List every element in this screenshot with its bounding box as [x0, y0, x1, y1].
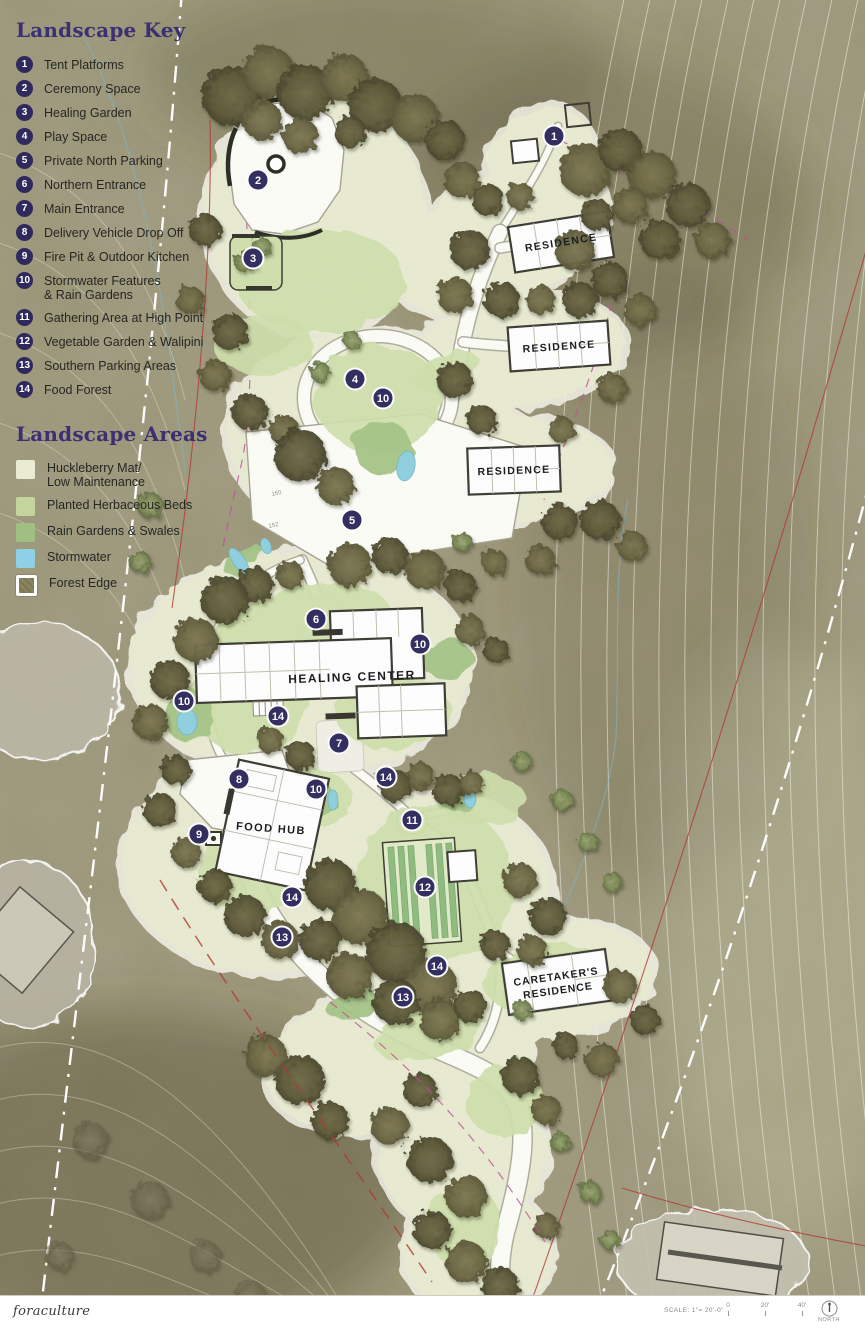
legend-key-item-2: 2Ceremony Space	[16, 79, 256, 97]
legend-key-item-9: 9Fire Pit & Outdoor Kitchen	[16, 247, 256, 265]
area-color-swatch	[16, 460, 35, 479]
north-indicator: NORTH	[816, 1300, 842, 1323]
key-number-badge: 13	[16, 357, 33, 374]
svg-text:8: 8	[236, 774, 242, 786]
tent-platform	[511, 139, 539, 164]
plan-marker-9: 9	[189, 824, 210, 845]
key-number-badge: 10	[16, 272, 33, 289]
plan-marker-13: 13	[393, 987, 414, 1008]
key-number-badge: 3	[16, 104, 33, 121]
plan-marker-11: 11	[402, 810, 423, 831]
area-label: Forest Edge	[49, 574, 117, 591]
legend-area-item: Rain Gardens & Swales	[16, 522, 256, 542]
legend-key-item-3: 3Healing Garden	[16, 103, 256, 121]
key-number-badge: 5	[16, 152, 33, 169]
scale-tick: 40'	[792, 1302, 812, 1316]
key-number-badge: 6	[16, 176, 33, 193]
legend-key-item-13: 13Southern Parking Areas	[16, 356, 256, 374]
legend-key-title: Landscape Key	[16, 18, 256, 42]
legend-key-item-4: 4Play Space	[16, 127, 256, 145]
legend-key-list: 1Tent Platforms2Ceremony Space3Healing G…	[16, 55, 256, 398]
area-color-swatch	[16, 549, 35, 568]
key-number-badge: 1	[16, 56, 33, 73]
key-number-badge: 14	[16, 381, 33, 398]
legend-panel: Landscape Key 1Tent Platforms2Ceremony S…	[16, 6, 256, 602]
legend-key-item-6: 6Northern Entrance	[16, 175, 256, 193]
svg-text:5: 5	[349, 515, 355, 527]
scale-bar: 020'40'	[718, 1302, 818, 1326]
key-item-label: Gathering Area at High Point	[44, 308, 203, 325]
key-number-badge: 7	[16, 200, 33, 217]
plan-marker-14: 14	[268, 706, 289, 727]
plan-marker-1: 1	[544, 126, 565, 147]
plan-marker-10: 10	[306, 779, 327, 800]
legend-key-item-1: 1Tent Platforms	[16, 55, 256, 73]
key-item-label: Vegetable Garden & Walipini	[44, 332, 203, 349]
scale-text: SCALE: 1"= 20'-0"	[664, 1307, 724, 1314]
plan-marker-14: 14	[376, 767, 397, 788]
svg-text:14: 14	[431, 961, 444, 973]
plan-marker-10: 10	[174, 691, 195, 712]
key-item-label: Tent Platforms	[44, 55, 124, 72]
area-color-swatch	[16, 575, 37, 596]
key-item-label: Ceremony Space	[44, 79, 141, 96]
plan-marker-4: 4	[345, 369, 366, 390]
key-item-label: Fire Pit & Outdoor Kitchen	[44, 247, 189, 264]
plan-marker-13: 13	[272, 927, 293, 948]
svg-text:10: 10	[178, 696, 190, 708]
legend-area-item: Huckleberry Mat/ Low Maintenance	[16, 459, 256, 490]
svg-text:4: 4	[352, 374, 359, 386]
svg-text:10: 10	[310, 784, 322, 796]
plan-marker-14: 14	[427, 956, 448, 977]
landscape-plan-sheet: RESIDENCE RESIDENCE RESIDENCE HEALING CE…	[0, 0, 865, 1329]
key-item-label: Northern Entrance	[44, 175, 146, 192]
sheet-footer: foraculture SCALE: 1"= 20'-0" 020'40' NO…	[0, 1295, 865, 1329]
key-item-label: Play Space	[44, 127, 107, 144]
scale-tick: 0	[718, 1302, 738, 1316]
svg-text:12: 12	[419, 882, 431, 894]
key-item-label: Delivery Vehicle Drop Off	[44, 223, 183, 240]
legend-areas-title: Landscape Areas	[16, 422, 256, 446]
plan-marker-7: 7	[329, 733, 350, 754]
plan-marker-14: 14	[282, 887, 303, 908]
key-item-label: Private North Parking	[44, 151, 163, 168]
plan-marker-10: 10	[373, 388, 394, 409]
walipini	[447, 850, 477, 882]
svg-text:9: 9	[196, 829, 202, 841]
svg-text:6: 6	[313, 614, 319, 626]
svg-text:10: 10	[414, 639, 426, 651]
legend-key-item-7: 7Main Entrance	[16, 199, 256, 217]
svg-text:7: 7	[336, 738, 342, 750]
key-number-badge: 4	[16, 128, 33, 145]
plan-marker-10: 10	[410, 634, 431, 655]
key-number-badge: 12	[16, 333, 33, 350]
key-number-badge: 2	[16, 80, 33, 97]
plan-marker-12: 12	[415, 877, 436, 898]
legend-area-item: Planted Herbaceous Beds	[16, 496, 256, 516]
area-label: Stormwater	[47, 548, 111, 565]
key-number-badge: 9	[16, 248, 33, 265]
legend-key-item-11: 11Gathering Area at High Point	[16, 308, 256, 326]
key-item-label: Food Forest	[44, 380, 111, 397]
svg-text:14: 14	[286, 892, 299, 904]
legend-area-item: Forest Edge	[16, 574, 256, 596]
area-label: Huckleberry Mat/ Low Maintenance	[47, 459, 145, 490]
key-item-label: Southern Parking Areas	[44, 356, 176, 373]
plan-marker-8: 8	[229, 769, 250, 790]
north-arrow-icon	[821, 1300, 838, 1317]
scale-tick: 20'	[755, 1302, 775, 1316]
legend-key-item-8: 8Delivery Vehicle Drop Off	[16, 223, 256, 241]
legend-key-item-14: 14Food Forest	[16, 380, 256, 398]
svg-text:1: 1	[551, 131, 557, 143]
ceremony-fire-circle	[268, 156, 284, 172]
svg-text:10: 10	[377, 393, 389, 405]
plan-marker-6: 6	[306, 609, 327, 630]
brand-logo: foraculture	[13, 1304, 90, 1319]
legend-key-item-10: 10Stormwater Features & Rain Gardens	[16, 271, 256, 302]
svg-text:13: 13	[397, 992, 409, 1004]
area-label: Planted Herbaceous Beds	[47, 496, 192, 513]
legend-area-item: Stormwater	[16, 548, 256, 568]
legend-key-item-12: 12Vegetable Garden & Walipini	[16, 332, 256, 350]
svg-text:11: 11	[406, 815, 418, 827]
svg-text:14: 14	[380, 772, 393, 784]
key-number-badge: 11	[16, 309, 33, 326]
key-item-label: Stormwater Features & Rain Gardens	[44, 271, 161, 302]
legend-areas-list: Huckleberry Mat/ Low MaintenancePlanted …	[16, 459, 256, 596]
key-item-label: Healing Garden	[44, 103, 132, 120]
svg-text:14: 14	[272, 711, 285, 723]
svg-text:13: 13	[276, 932, 288, 944]
area-color-swatch	[16, 497, 35, 516]
key-item-label: Main Entrance	[44, 199, 125, 216]
north-label: NORTH	[816, 1317, 842, 1323]
legend-key-item-5: 5Private North Parking	[16, 151, 256, 169]
area-color-swatch	[16, 523, 35, 542]
key-number-badge: 8	[16, 224, 33, 241]
plan-marker-5: 5	[342, 510, 363, 531]
area-label: Rain Gardens & Swales	[47, 522, 180, 539]
residence-east-label: RESIDENCE	[477, 464, 550, 479]
